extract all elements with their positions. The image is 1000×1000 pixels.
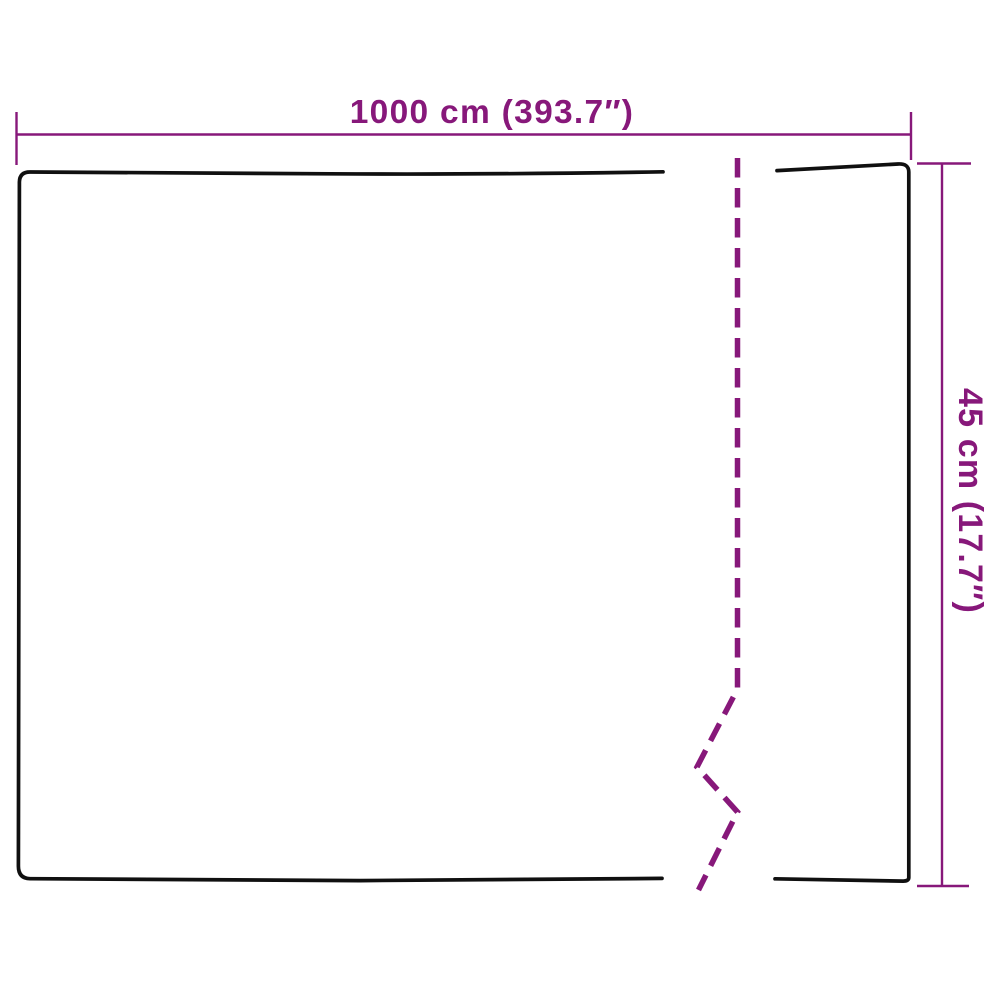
svg-text:1000 cm (393.7″): 1000 cm (393.7″) [350,94,635,131]
svg-text:45 cm (17.7″): 45 cm (17.7″) [951,388,989,614]
